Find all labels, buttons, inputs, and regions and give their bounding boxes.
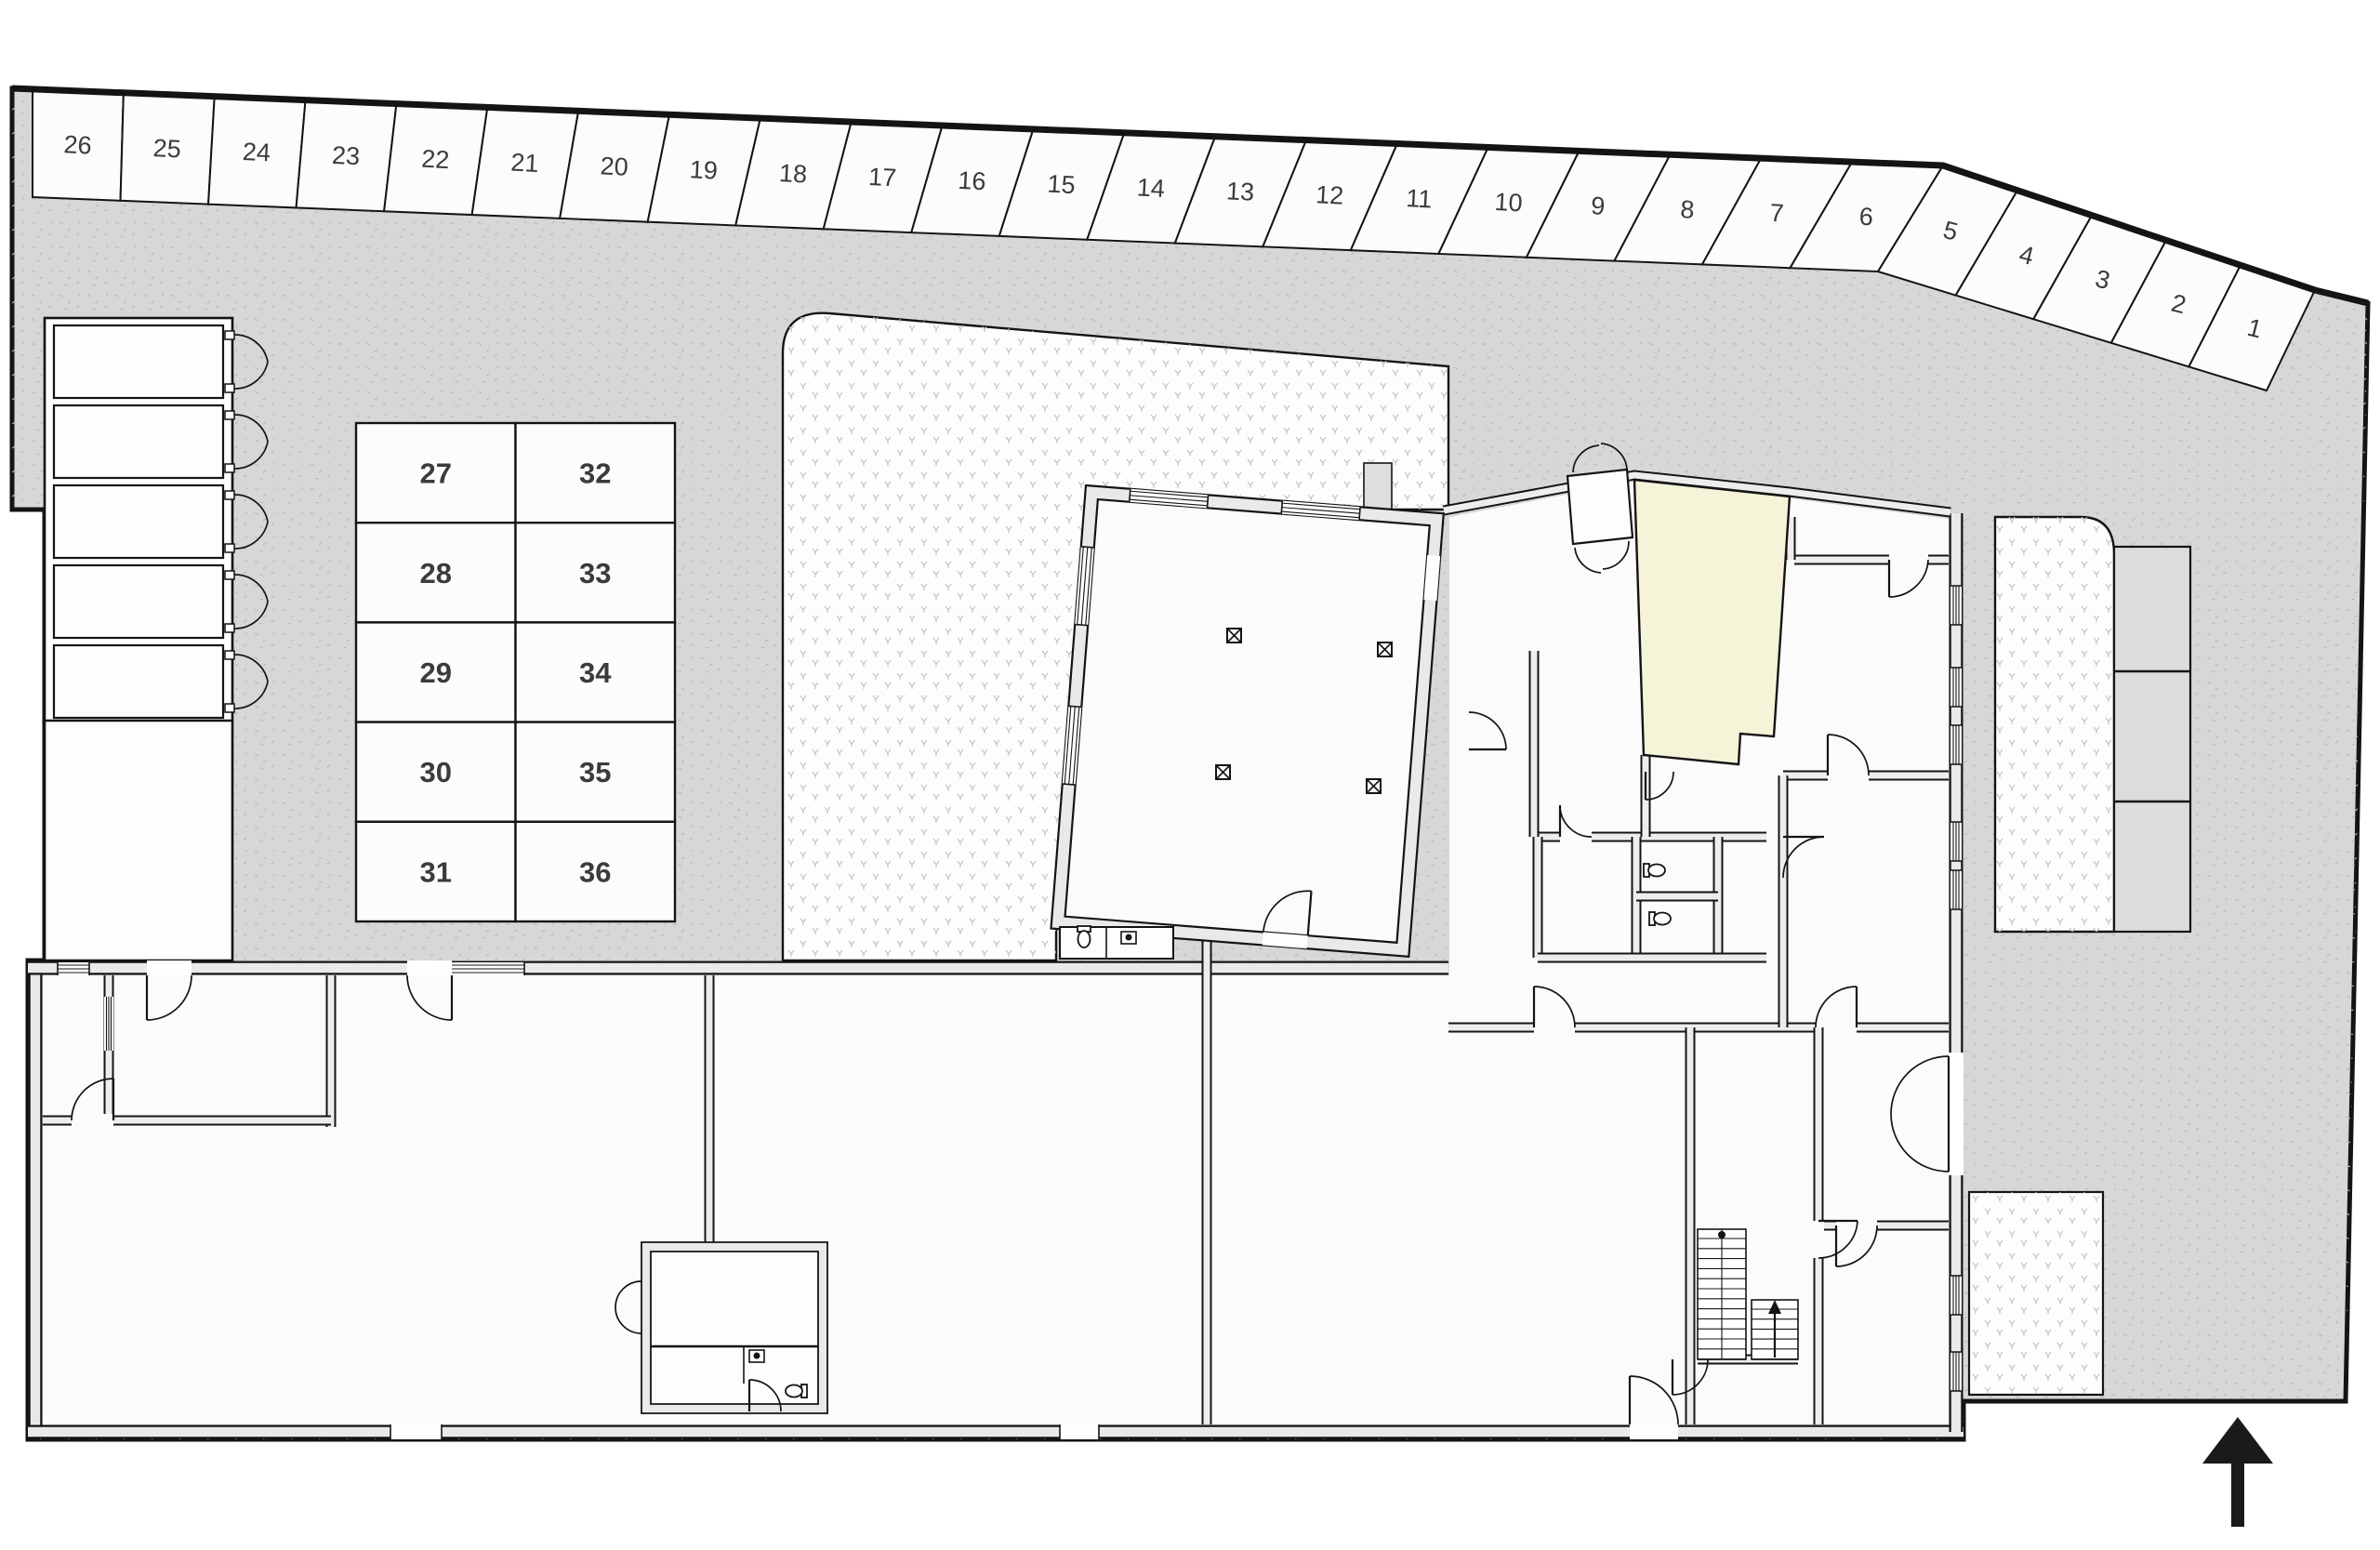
southeast-paving-patch <box>1969 1192 2103 1395</box>
chimney-block <box>1364 463 1392 511</box>
toilet-bowl <box>786 1385 802 1398</box>
parking-stall-number: 15 <box>1047 170 1077 200</box>
threshold-gap <box>1060 1424 1099 1439</box>
sink-icon <box>749 1350 764 1362</box>
grid-parking-number: 35 <box>579 756 611 788</box>
garage-box <box>54 485 223 558</box>
east-paving-strip <box>1995 517 2190 932</box>
toilet-bowl <box>1648 865 1665 877</box>
window-icon <box>1950 870 1962 909</box>
highlight-room <box>1634 480 1790 764</box>
patch-texture <box>1969 1192 2103 1395</box>
door-opening <box>1630 1424 1678 1439</box>
threshold <box>1060 1424 1099 1439</box>
parking-stall-number: 14 <box>1136 173 1166 203</box>
floor-plan-drawing: 2625242322212019181716151413121110987654… <box>0 0 2380 1550</box>
garage-door-jamb <box>225 331 234 339</box>
window-icon <box>1950 1352 1962 1391</box>
storage-room-floor <box>651 1252 818 1404</box>
parking-stall-number: 21 <box>510 148 540 178</box>
parking-stall-number: 25 <box>152 134 182 164</box>
window-icon <box>58 962 89 975</box>
garage-door-jamb <box>225 491 234 499</box>
parking-stall-number: 26 <box>63 130 93 160</box>
sink-drain <box>1126 934 1132 941</box>
column-marker-icon <box>1227 629 1241 643</box>
grid-parking-number: 31 <box>420 855 452 888</box>
panel-stack <box>2114 547 2190 932</box>
parking-stall-number: 24 <box>242 138 271 167</box>
garage-box <box>54 325 223 398</box>
column-marker-icon <box>1367 779 1381 793</box>
garage-box <box>54 405 223 478</box>
grid-parking-number: 34 <box>579 656 612 689</box>
parking-stall-number: 22 <box>421 145 451 175</box>
wc-toilet-icon <box>1644 864 1665 877</box>
window-icon <box>1950 668 1962 707</box>
door-opening <box>147 960 192 975</box>
parking-stall-number: 6 <box>1858 203 1874 232</box>
window-icon <box>443 962 524 975</box>
threshold-gap <box>390 1424 442 1439</box>
window-icon <box>1950 1276 1962 1315</box>
threshold <box>390 1424 442 1439</box>
window-icon <box>104 997 113 1051</box>
parking-stall-number: 12 <box>1315 180 1344 210</box>
parking-stall-number: 17 <box>867 163 897 192</box>
parking-stall-number: 19 <box>689 155 719 185</box>
window-icon <box>1950 822 1962 861</box>
garage-door-jamb <box>225 704 234 712</box>
window-icon <box>1950 725 1962 764</box>
wc-toilet-icon <box>1078 926 1091 947</box>
garage-door-jamb <box>225 384 234 392</box>
parking-stall-number: 16 <box>958 166 987 196</box>
parking-stall-number: 18 <box>778 159 808 189</box>
east-paving-texture <box>1995 517 2114 932</box>
garage-door-jamb <box>225 544 234 552</box>
parking-stall-number: 9 <box>1591 192 1606 220</box>
toilet-bowl <box>1654 913 1671 925</box>
garage-door-jamb <box>225 651 234 659</box>
grid-parking-number: 27 <box>420 457 452 490</box>
parking-stall-number: 11 <box>1406 184 1434 213</box>
garage-door-jamb <box>225 624 234 632</box>
parking-stall-number: 20 <box>600 152 629 181</box>
grid-parking-number: 29 <box>420 656 452 689</box>
stair-start-dot <box>1718 1231 1725 1239</box>
parking-stall-number: 23 <box>331 141 361 171</box>
parking-stall-number: 10 <box>1494 188 1524 218</box>
toilet-bowl <box>1078 931 1091 947</box>
parking-stall-number: 8 <box>1680 195 1696 224</box>
wc-toilet-icon <box>786 1384 807 1398</box>
grid-parking-number: 33 <box>579 557 611 590</box>
column-marker-icon <box>1216 765 1230 779</box>
floor-plan-stage: 2625242322212019181716151413121110987654… <box>0 0 2380 1550</box>
sink-drain <box>754 1353 760 1359</box>
grid-parking-number: 36 <box>579 855 611 888</box>
door-opening <box>1949 1053 1963 1175</box>
parking-stall-number: 13 <box>1225 177 1255 206</box>
garage-box <box>54 565 223 638</box>
garage-door-jamb <box>225 464 234 472</box>
sink-icon <box>1121 932 1136 944</box>
window-icon <box>1950 586 1962 625</box>
column-marker-icon <box>1378 643 1392 656</box>
grid-parking-number: 32 <box>579 457 611 490</box>
wc-toilet-icon <box>1649 912 1671 925</box>
garage-door-jamb <box>225 571 234 579</box>
door-opening <box>407 960 452 975</box>
garage-box <box>54 645 223 718</box>
garage-door-jamb <box>225 411 234 419</box>
parking-stall-number: 7 <box>1769 199 1785 228</box>
main-hall-floor <box>1065 499 1430 943</box>
parking-grid: 27282930313233343536 <box>356 423 675 921</box>
grid-parking-number: 30 <box>420 756 452 788</box>
grid-parking-number: 28 <box>420 557 452 590</box>
north-arrow-icon <box>2202 1417 2273 1527</box>
main-hall <box>1051 485 1443 957</box>
